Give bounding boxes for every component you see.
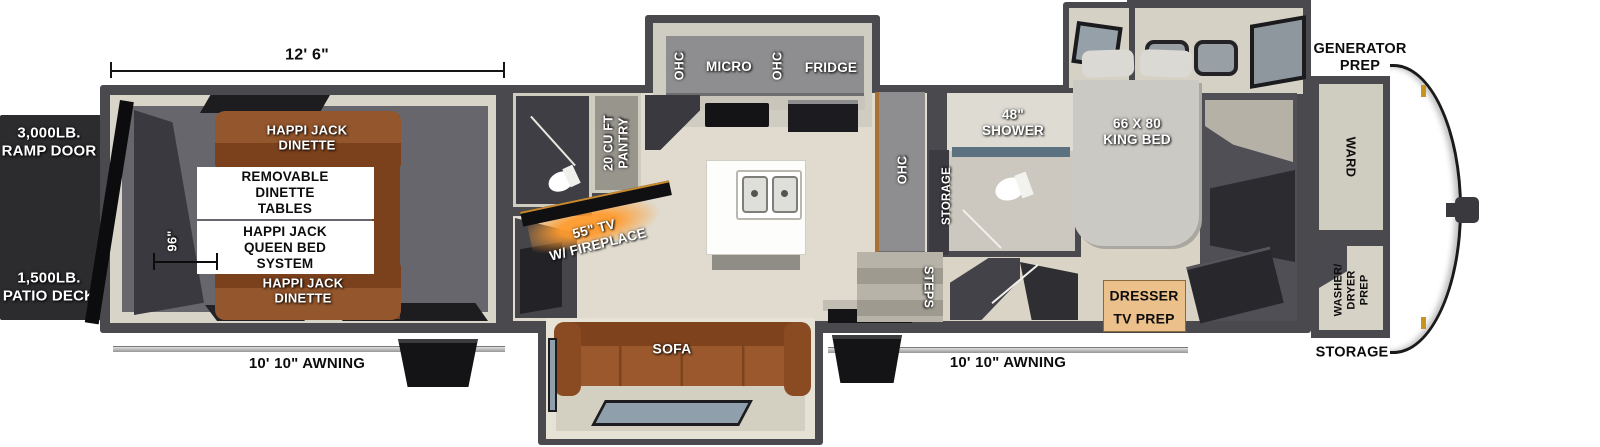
pillow-right [1140, 49, 1193, 78]
dimension-tick-left [110, 62, 112, 78]
dimension-garage-length-label: 96" [164, 230, 179, 251]
bath-storage-label: STORAGE [941, 167, 955, 225]
king-bed-label: 66 X 80 KING BED [1103, 116, 1171, 148]
cooktop [705, 103, 769, 127]
sink-right-drain [781, 190, 788, 197]
pantry-label: 20 CU FT PANTRY [601, 97, 631, 189]
patio-deck-label: 1,500LB. PATIO DECK [3, 269, 95, 304]
dimension-garage-width-label: 12' 6" [285, 47, 329, 66]
washer-dryer-label: WASHER/ DRYER PREP [1333, 264, 1372, 317]
dimension-96-tick-right [216, 253, 218, 270]
sink-left-drain [751, 190, 758, 197]
king-bed [1073, 80, 1199, 246]
pillow-left [1082, 49, 1135, 78]
wardrobe-label: WARD [1343, 137, 1358, 178]
entry-steps-right [832, 335, 902, 383]
dinette-front-label: HAPPI JACK DINETTE [267, 123, 348, 154]
front-window-right [1194, 40, 1238, 76]
sofa-arm-right [784, 322, 811, 396]
cap-marker-bottom [1421, 317, 1426, 329]
hitch-pin-box [1455, 197, 1479, 223]
sofa-slide-rear-window [591, 400, 753, 426]
fridge-unit [788, 100, 858, 132]
shower-label: 48" SHOWER [982, 107, 1044, 139]
generator-prep-label: GENERATOR PREP [1313, 41, 1406, 75]
front-corner-window [1250, 15, 1306, 89]
tv-prep-label: TV PREP [1113, 311, 1174, 328]
ramp-door-label: 3,000LB. RAMP DOOR [2, 124, 97, 159]
shower-ledge [952, 147, 1070, 157]
steps-label: STEPS [921, 266, 936, 308]
exterior-storage-label: STORAGE [1316, 344, 1389, 361]
dimension-96-line [154, 261, 218, 263]
ohc-mid-label: OHC [771, 52, 786, 80]
dimension-96-tick-left [153, 253, 155, 270]
cap-marker-top [1421, 85, 1426, 97]
microwave-label: MICRO [706, 59, 752, 75]
entry-ohc-label: OHC [896, 156, 911, 184]
removable-tables-label: REMOVABLE DINETTE TABLES [241, 169, 328, 217]
queen-bed-label: HAPPI JACK QUEEN BED SYSTEM [243, 224, 327, 272]
dinette-rear-label: HAPPI JACK DINETTE [263, 276, 344, 307]
sofa-slide-side-window [548, 338, 557, 412]
fridge-label: FRIDGE [805, 60, 857, 76]
sofa-arm-left [554, 322, 581, 396]
entry-steps-left [398, 339, 478, 387]
sofa-label: SOFA [653, 341, 692, 358]
dimension-line [110, 70, 505, 72]
awning-left-label: 10' 10" AWNING [249, 355, 365, 373]
dresser-label: DRESSER [1109, 288, 1178, 305]
ohc-left-label: OHC [673, 52, 688, 80]
rv-floorplan: 12' 6" 3,000LB. RAMP DOOR 1,500LB. PATIO… [0, 0, 1600, 447]
dimension-tick-right [503, 62, 505, 78]
awning-right-label: 10' 10" AWNING [950, 354, 1066, 372]
